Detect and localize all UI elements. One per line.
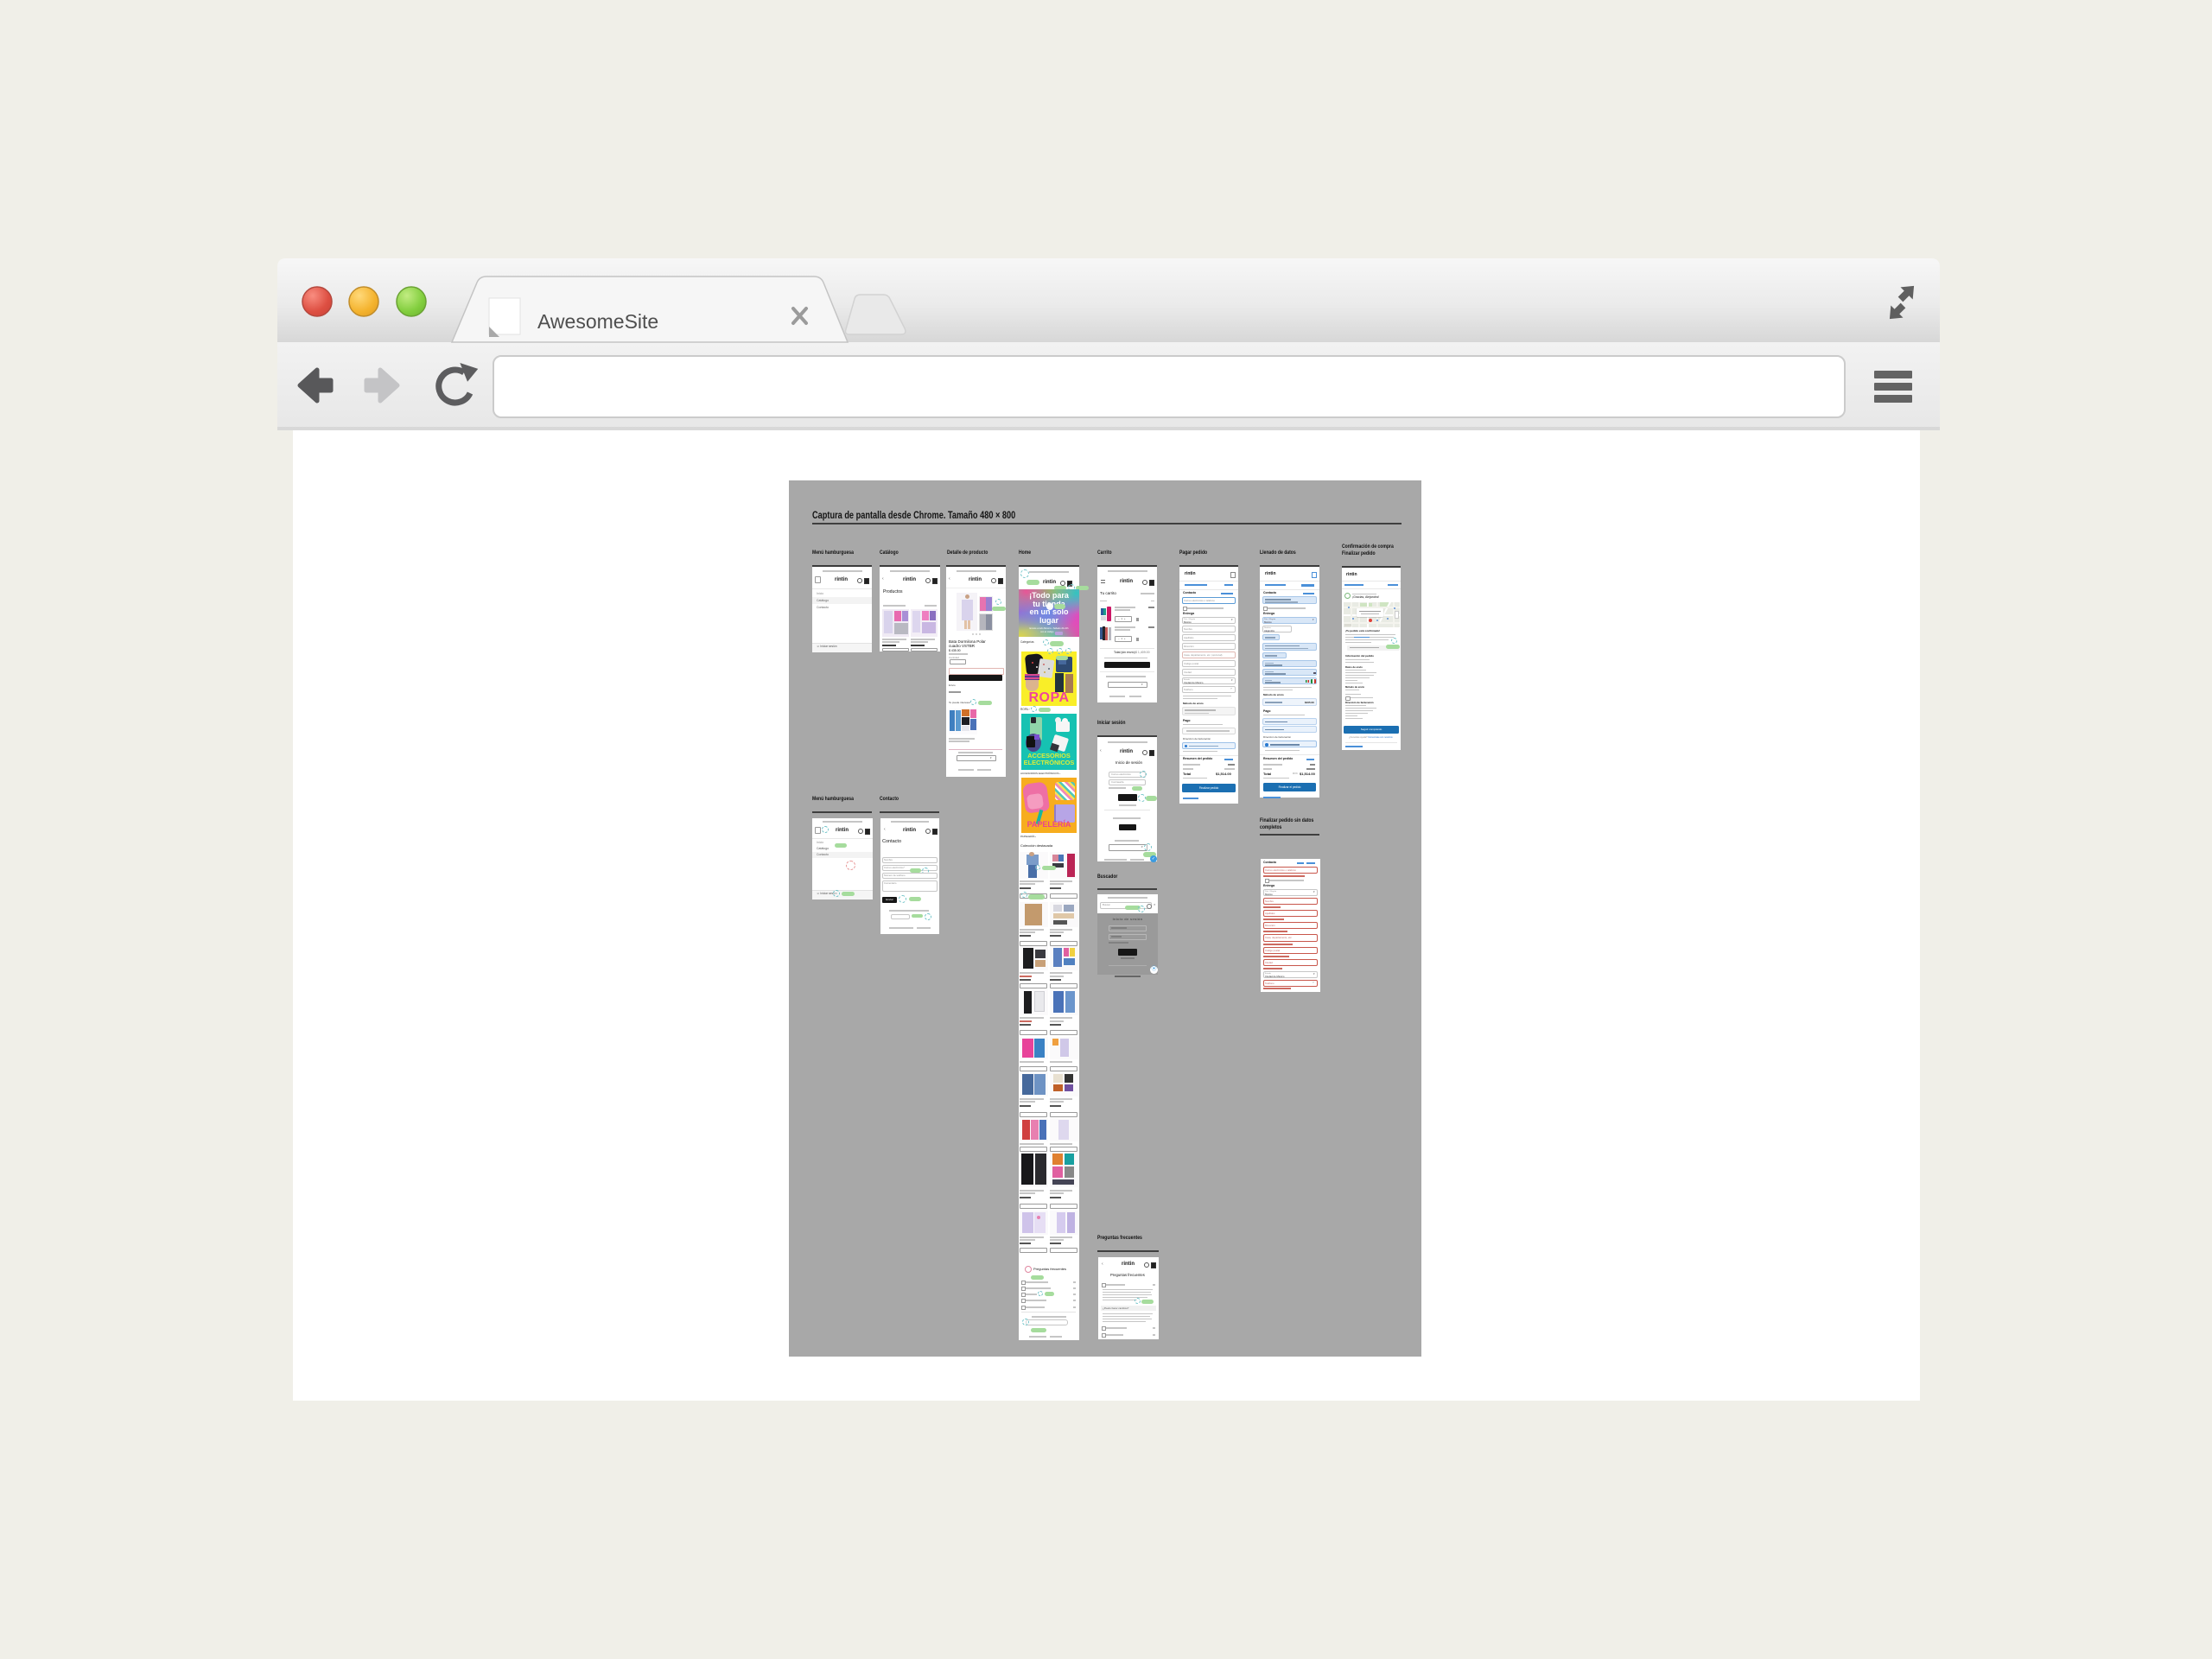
svg-text:AwesomeSite: AwesomeSite: [537, 310, 658, 333]
